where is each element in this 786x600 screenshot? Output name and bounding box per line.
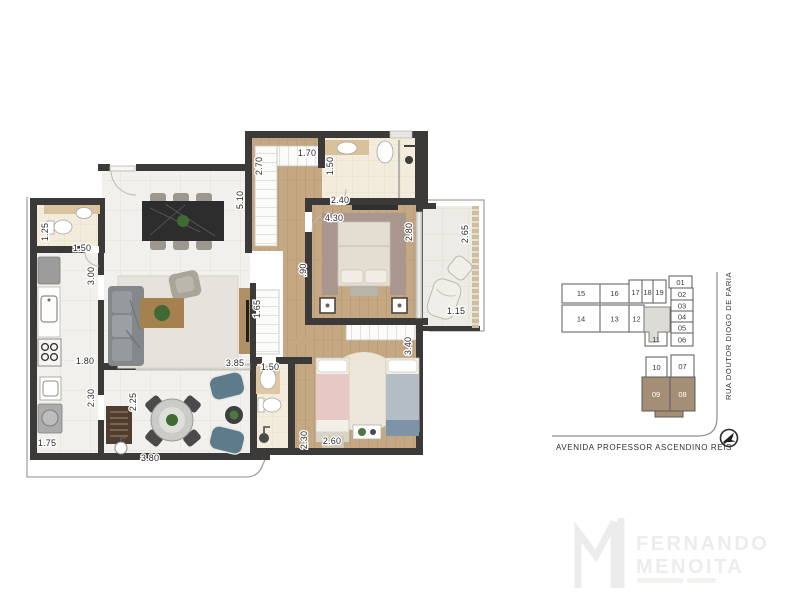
keyplan-unit-label: 10 bbox=[652, 363, 660, 372]
street-name-right: RUA DOUTOR DIOGO DE FARIA bbox=[724, 272, 733, 400]
dim-label: 2.30 bbox=[86, 389, 96, 407]
dim-label: 3.40 bbox=[403, 337, 413, 355]
floor-plan: 1.25 1.50 3.00 1.80 2.30 1.75 2.25 3.80 … bbox=[27, 131, 484, 477]
dim-label: 2.25 bbox=[128, 393, 138, 411]
brand-name-line2: MENOITA bbox=[636, 556, 744, 578]
brand-name-line1: FERNANDO bbox=[636, 533, 769, 555]
keyplan-unit-label: 03 bbox=[678, 302, 686, 311]
keyplan-unit-label: 09 bbox=[652, 390, 660, 399]
brand-logo: FERNANDO MENOITA bbox=[578, 518, 769, 588]
keyplan-unit-label: 05 bbox=[678, 324, 686, 333]
laundry-fixtures bbox=[38, 377, 62, 433]
dim-label: 2.30 bbox=[299, 431, 309, 449]
keyplan-unit-step bbox=[655, 411, 683, 417]
keyplan-unit-label: 16 bbox=[610, 289, 618, 298]
keyplan-unit-label: 17 bbox=[631, 288, 639, 297]
keyplan-unit-label: 07 bbox=[678, 362, 686, 371]
dim-label: 1.50 bbox=[325, 157, 335, 175]
dim-label: 3.80 bbox=[141, 453, 159, 463]
keyplan-unit-label: 12 bbox=[632, 315, 640, 324]
keyplan-unit-label: 01 bbox=[676, 278, 684, 287]
brand-tagline-illegible bbox=[637, 578, 716, 583]
dim-label: 3.00 bbox=[86, 267, 96, 285]
dim-label: 2.40 bbox=[331, 195, 349, 205]
keyplan: 15 16 17 18 19 01 02 03 04 05 06 14 13 1… bbox=[552, 272, 738, 452]
floorplan-page: 1.25 1.50 3.00 1.80 2.30 1.75 2.25 3.80 … bbox=[0, 0, 786, 600]
brand-logo-m-icon bbox=[578, 518, 621, 588]
dim-label: .90 bbox=[298, 263, 308, 276]
keyplan-unit-label: 14 bbox=[577, 315, 585, 324]
dim-label: 2.80 bbox=[404, 223, 414, 241]
dim-label: 2.65 bbox=[460, 225, 470, 243]
dim-label: 2.70 bbox=[254, 157, 264, 175]
dim-label: 2.60 bbox=[323, 436, 341, 446]
keyplan-unit-label: 18 bbox=[643, 288, 651, 297]
dim-label: 1.80 bbox=[76, 356, 94, 366]
sofa bbox=[108, 286, 144, 366]
kitchen-counter bbox=[38, 287, 60, 337]
dim-label: 1.75 bbox=[38, 438, 56, 448]
dim-label: 1.50 bbox=[73, 243, 91, 253]
keyplan-unit-label: 13 bbox=[610, 315, 618, 324]
dim-label: 1.15 bbox=[447, 306, 465, 316]
dim-label: 1.50 bbox=[261, 362, 279, 372]
dim-label: 1.25 bbox=[40, 223, 50, 241]
keyplan-unit-label: 11 bbox=[652, 335, 660, 344]
fridge bbox=[38, 257, 60, 284]
dim-label: 1.65 bbox=[252, 300, 262, 318]
dim-label: 1.70 bbox=[298, 148, 316, 158]
keyplan-unit-label: 15 bbox=[577, 289, 585, 298]
coffee-table bbox=[140, 298, 184, 328]
tv-console bbox=[239, 288, 250, 354]
keyplan-unit-label: 08 bbox=[678, 390, 686, 399]
keyplan-unit-label: 02 bbox=[678, 290, 686, 299]
dim-label: 5.10 bbox=[235, 191, 245, 209]
keyplan-unit-label: 04 bbox=[678, 313, 686, 322]
dim-label: 4.30 bbox=[325, 213, 343, 223]
keyplan-unit-label: 19 bbox=[655, 288, 663, 297]
terrace-table bbox=[144, 394, 202, 447]
bedroom2-furniture bbox=[316, 352, 419, 448]
stove bbox=[38, 339, 61, 366]
dim-label: 3.85 bbox=[226, 358, 244, 368]
corridor-closet bbox=[255, 290, 279, 354]
floorplan-canvas: 1.25 1.50 3.00 1.80 2.30 1.75 2.25 3.80 … bbox=[0, 0, 786, 600]
street-name-bottom: AVENIDA PROFESSOR ASCENDINO REIS bbox=[556, 443, 732, 452]
keyplan-unit-label: 06 bbox=[678, 336, 686, 345]
